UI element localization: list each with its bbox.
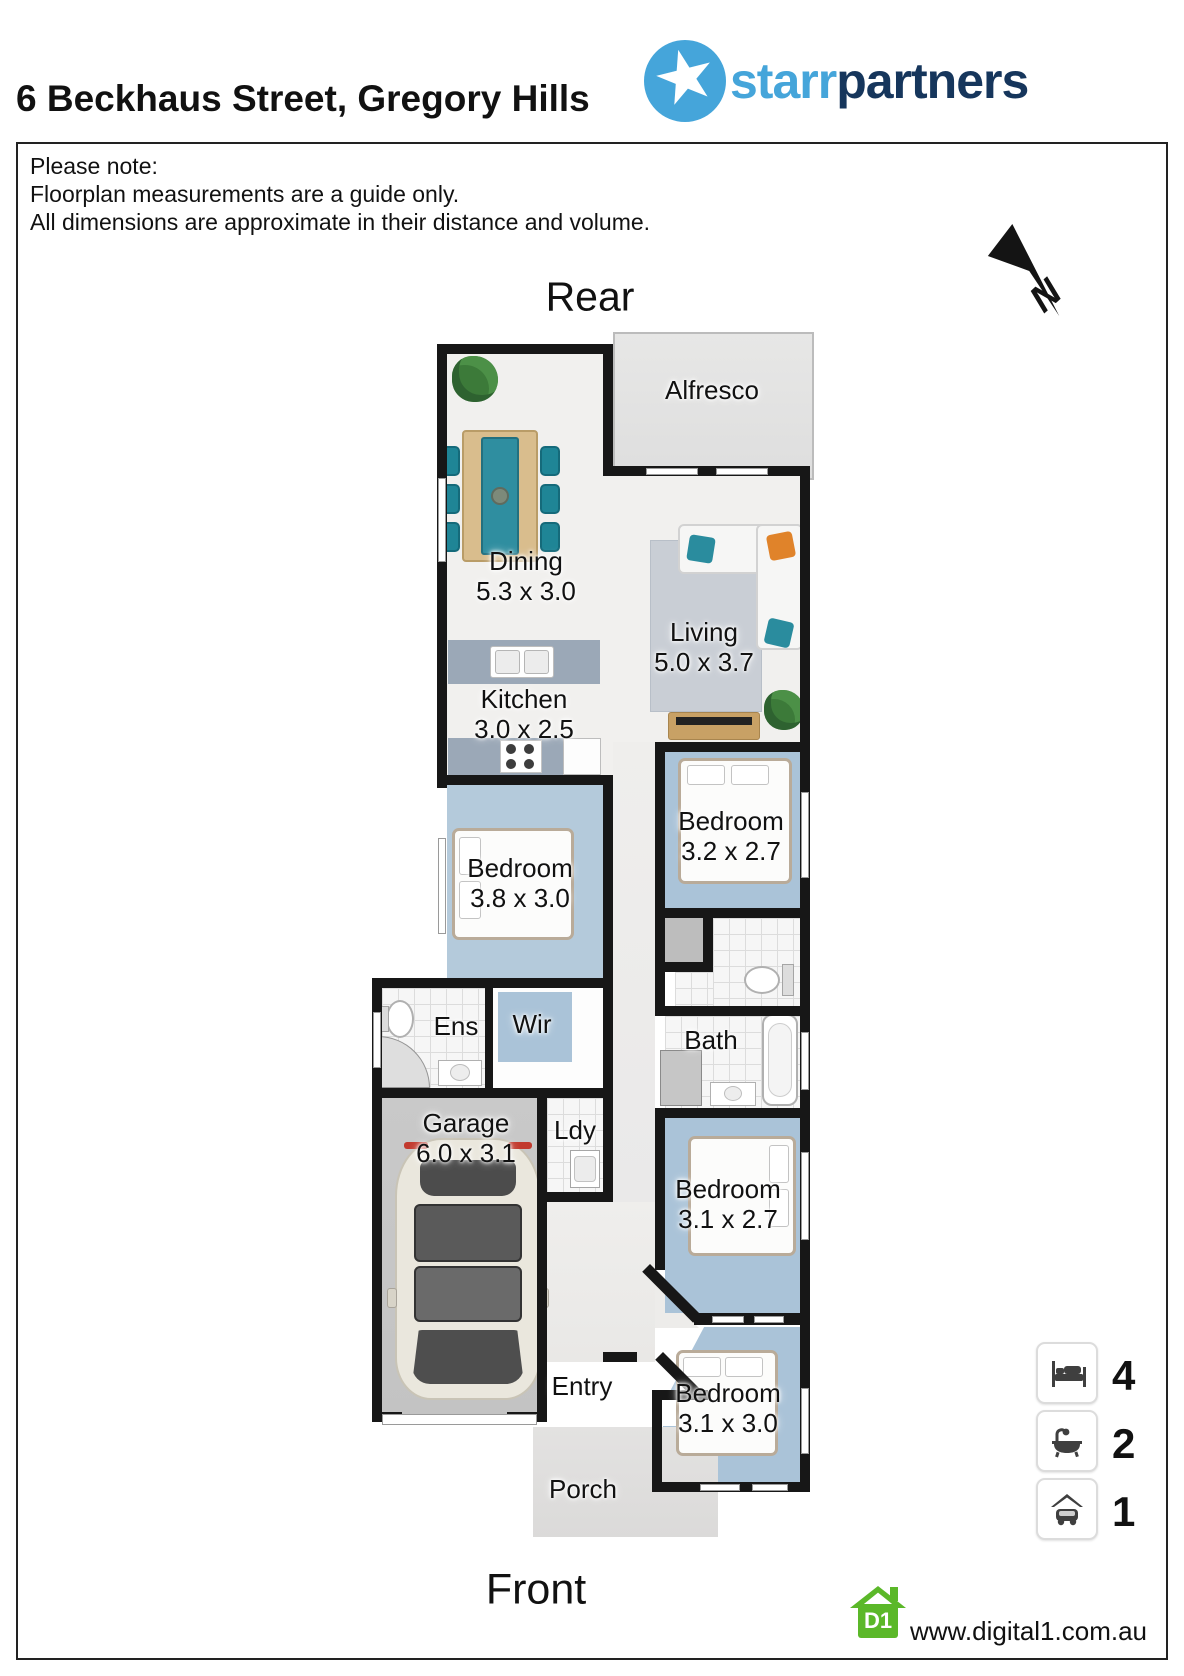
shower: [660, 1050, 702, 1106]
cushion: [686, 534, 716, 564]
alfresco-floor: [613, 332, 814, 480]
starrpartners-logo-icon: ★: [644, 40, 726, 122]
wall: [665, 962, 713, 972]
room-name: Garage: [416, 1108, 516, 1138]
room-label-alfresco: Alfresco: [665, 375, 759, 405]
pillow: [731, 765, 769, 785]
bath-icon: [1047, 1421, 1087, 1461]
wall: [655, 742, 665, 918]
room-label-bedroom1: Bedroom 3.8 x 3.0: [467, 853, 573, 913]
wall: [694, 1313, 800, 1325]
plant: [452, 356, 498, 402]
legend-garage-count: 1: [1112, 1488, 1135, 1536]
room-name: Ens: [434, 1011, 479, 1041]
window: [801, 1152, 809, 1240]
car-icon: [1047, 1489, 1087, 1529]
wall: [603, 1088, 613, 1202]
pillow: [683, 1357, 721, 1377]
star-icon: ★: [638, 28, 732, 126]
wall: [437, 344, 613, 354]
window: [752, 1484, 788, 1491]
room-name: Entry: [552, 1371, 613, 1401]
room-dims: 3.8 x 3.0: [467, 883, 573, 913]
dining-chair: [540, 446, 560, 476]
wall: [437, 344, 447, 788]
plant: [764, 690, 804, 730]
wall: [655, 908, 810, 918]
wall: [655, 1006, 810, 1016]
sink-basin: [495, 650, 520, 674]
burner: [506, 759, 516, 769]
legend-bedrooms-count: 4: [1112, 1352, 1135, 1400]
room-label-laundry: Ldy: [554, 1115, 596, 1145]
floorplan-page: 6 Beckhaus Street, Gregory Hills ★ starr…: [0, 0, 1184, 1676]
window: [646, 468, 698, 475]
wall: [372, 1088, 613, 1098]
room-name: Ldy: [554, 1115, 596, 1145]
room-label-dining: Dining 5.3 x 3.0: [476, 546, 576, 606]
wall: [655, 1108, 810, 1118]
room-label-living: Living 5.0 x 3.7: [654, 617, 754, 677]
burner: [524, 744, 534, 754]
room-label-bedroom2: Bedroom 3.2 x 2.7: [678, 806, 784, 866]
starrpartners-logo-text: starrpartners: [730, 52, 1028, 110]
room-name: Alfresco: [665, 375, 759, 405]
window: [716, 468, 768, 475]
room-name: Dining: [476, 546, 576, 576]
room-label-porch: Porch: [549, 1474, 617, 1504]
note-line-1: Please note:: [30, 152, 158, 180]
wall: [603, 344, 613, 476]
bed-icon: [1047, 1353, 1087, 1393]
note-line-3: All dimensions are approximate in their …: [30, 208, 650, 236]
car-roof: [414, 1266, 522, 1322]
wall: [603, 775, 613, 1098]
room-dims: 3.1 x 3.0: [675, 1408, 781, 1438]
window: [801, 792, 809, 878]
dining-chair: [540, 484, 560, 514]
room-dims: 3.2 x 2.7: [678, 836, 784, 866]
room-dims: 3.0 x 2.5: [474, 714, 574, 744]
digital1-url: www.digital1.com.au: [910, 1616, 1147, 1647]
page-title: 6 Beckhaus Street, Gregory Hills: [16, 78, 590, 120]
front-label: Front: [486, 1566, 586, 1615]
window: [712, 1316, 744, 1323]
room-dims: 5.0 x 3.7: [654, 647, 754, 677]
room-name: Kitchen: [474, 684, 574, 714]
room-label-bedroom4: Bedroom 3.1 x 3.0: [675, 1378, 781, 1438]
north-label: N: [1021, 270, 1070, 320]
legend-bathrooms-count: 2: [1112, 1420, 1135, 1468]
logo-part-starr: starr: [730, 53, 836, 109]
room-dims: 6.0 x 3.1: [416, 1138, 516, 1168]
legend-garage: [1036, 1478, 1098, 1540]
tv: [676, 717, 752, 725]
room-label-entry: Entry: [552, 1371, 613, 1401]
bathtub-basin: [768, 1023, 792, 1097]
wall: [437, 775, 613, 785]
car-windshield: [412, 1330, 524, 1384]
wall: [800, 466, 810, 752]
digital1-logo: D1: [850, 1586, 906, 1640]
room-name: Bedroom: [675, 1378, 781, 1408]
room-name: Porch: [549, 1474, 617, 1504]
linen-closet-floor: [665, 918, 703, 962]
window: [373, 1012, 381, 1068]
window: [754, 1316, 784, 1323]
wall: [655, 742, 810, 752]
wall: [655, 1118, 665, 1270]
room-name: Bedroom: [467, 853, 573, 883]
window: [438, 478, 446, 562]
room-name: Living: [654, 617, 754, 647]
toilet: [386, 1000, 414, 1038]
table-centerpiece: [491, 487, 509, 505]
room-label-ensuite: Ens: [434, 1011, 479, 1041]
wall: [372, 1098, 382, 1422]
wall: [655, 908, 665, 1016]
room-label-garage: Garage 6.0 x 3.1: [416, 1108, 516, 1168]
garage-door: [382, 1414, 537, 1425]
room-name: Bath: [684, 1025, 738, 1055]
legend-bathrooms: [1036, 1410, 1098, 1472]
window: [700, 1484, 740, 1491]
wall: [603, 1352, 637, 1362]
rear-label: Rear: [546, 274, 635, 321]
toilet: [744, 966, 780, 994]
north-arrow-icon: N: [986, 222, 1080, 320]
wall: [603, 466, 810, 476]
note-line-2: Floorplan measurements are a guide only.: [30, 180, 459, 208]
burner: [506, 744, 516, 754]
cushion: [766, 531, 796, 561]
wall: [485, 988, 493, 1088]
sink-basin: [524, 650, 549, 674]
window: [438, 838, 446, 934]
floor-gap: [603, 476, 613, 775]
room-label-kitchen: Kitchen 3.0 x 2.5: [474, 684, 574, 744]
room-name: Bedroom: [675, 1174, 781, 1204]
window: [801, 1388, 809, 1454]
room-dims: 5.3 x 3.0: [476, 576, 576, 606]
legend-bedrooms: [1036, 1342, 1098, 1404]
digital1-logo-text: D1: [858, 1604, 898, 1638]
wall: [652, 1390, 662, 1492]
pillow: [687, 765, 725, 785]
car-roof: [414, 1204, 522, 1262]
wall: [547, 1192, 613, 1202]
laundry-basin: [574, 1156, 596, 1182]
room-label-wir: Wir: [513, 1009, 552, 1039]
room-label-bedroom3: Bedroom 3.1 x 2.7: [675, 1174, 781, 1234]
wall: [372, 978, 613, 988]
car-mirror: [387, 1288, 397, 1308]
basin: [450, 1064, 470, 1081]
room-label-bath: Bath: [684, 1025, 738, 1055]
burner: [524, 759, 534, 769]
entry-floor: [547, 1202, 655, 1362]
wall: [537, 1098, 547, 1422]
logo-part-partners: partners: [836, 53, 1028, 109]
basin: [724, 1086, 742, 1101]
window: [801, 1032, 809, 1090]
toilet-cistern: [782, 964, 794, 996]
pillow: [725, 1357, 763, 1377]
room-dims: 3.1 x 2.7: [675, 1204, 781, 1234]
house-chimney-icon: [890, 1587, 898, 1601]
room-name: Bedroom: [678, 806, 784, 836]
room-name: Wir: [513, 1009, 552, 1039]
